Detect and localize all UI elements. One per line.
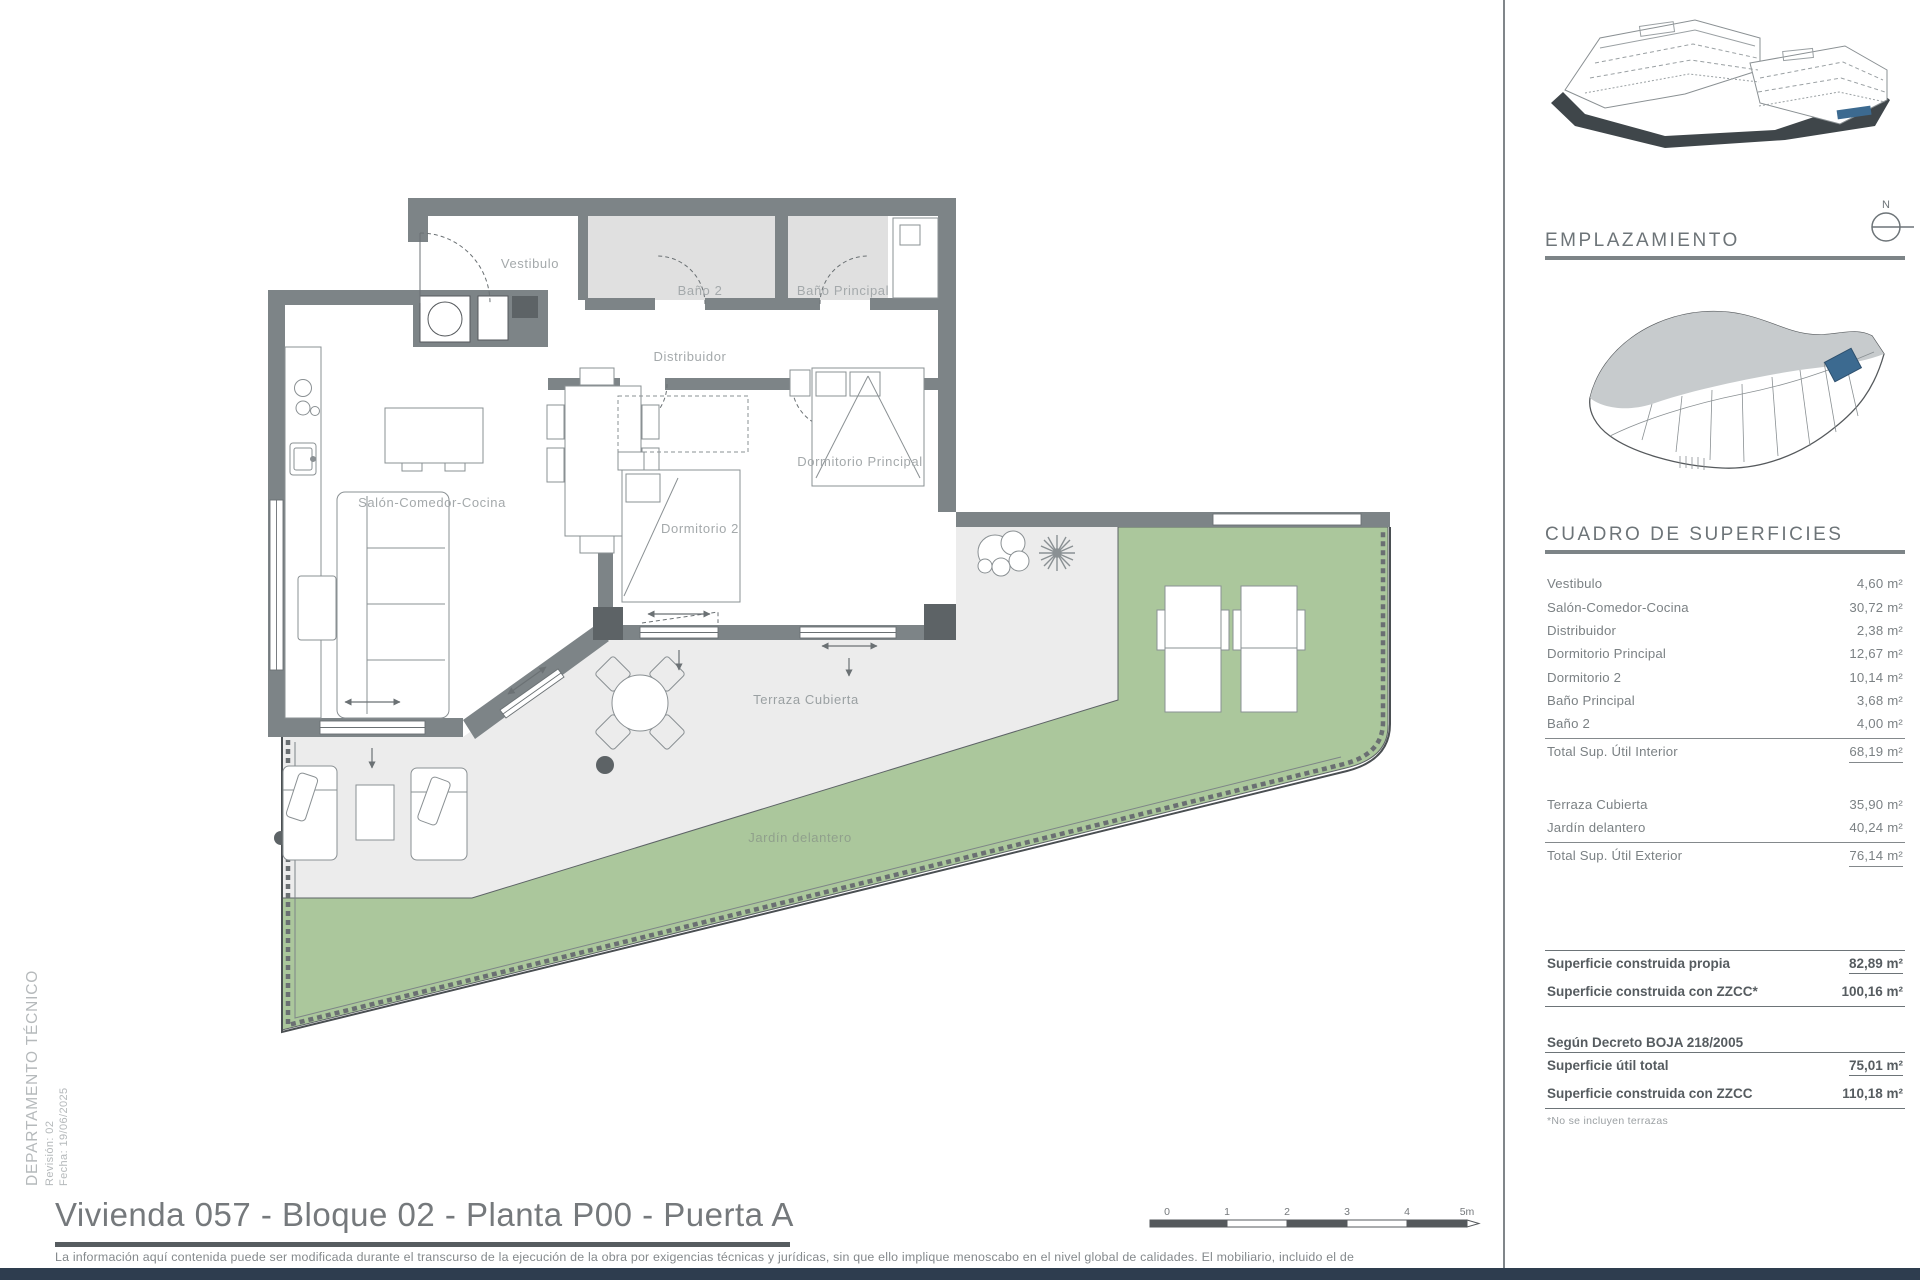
room-label-terraza: Terraza Cubierta: [753, 692, 859, 707]
revision-label: Revisión: 02: [44, 970, 56, 1186]
row-label: Baño Principal: [1547, 693, 1635, 708]
scale-label: 5m: [1460, 1206, 1475, 1218]
table-spacer: [1545, 767, 1905, 793]
room-label-dormitorio2: Dormitorio 2: [661, 521, 739, 536]
room-label-bano-principal: Baño Principal: [797, 283, 889, 298]
table-row: Terraza Cubierta35,90 m²: [1545, 793, 1905, 816]
table-row: Dormitorio Principal12,67 m²: [1545, 642, 1905, 665]
scale-bar: 0 1 2 3 4 5m: [1148, 1206, 1488, 1236]
table-row: Dormitorio 210,14 m²: [1545, 666, 1905, 689]
row-value: 100,16 m²: [1841, 984, 1903, 1001]
row-label: Vestibulo: [1547, 576, 1602, 591]
site-plan: [1572, 278, 1902, 508]
scale-label: 2: [1284, 1206, 1290, 1218]
total-interior-row: Total Sup. Útil Interior68,19 m²: [1545, 738, 1905, 767]
date-label: Fecha: 19/06/2025: [58, 970, 70, 1186]
department-label: DEPARTAMENTO TÉCNICO: [24, 970, 42, 1186]
side-revision-block: DEPARTAMENTO TÉCNICO Revisión: 02 Fecha:…: [24, 970, 70, 1186]
decreto-heading: Según Decreto BOJA 218/2005: [1545, 1031, 1905, 1052]
plant-bush-icon: [978, 531, 1029, 576]
built-surface-summary: Superficie construida propia82,89 m² Sup…: [1545, 950, 1905, 1133]
room-label-salon: Salón-Comedor-Cocina: [358, 495, 506, 510]
building-3d-sketch: [1545, 8, 1905, 168]
plant-star-icon: [1039, 535, 1075, 571]
row-value: 10,14 m²: [1849, 670, 1903, 685]
svg-text:N: N: [1882, 199, 1890, 211]
table-row: Distribuidor2,38 m²: [1545, 619, 1905, 642]
row-label: Terraza Cubierta: [1547, 797, 1648, 812]
row-value: 4,00 m²: [1857, 716, 1903, 731]
row-label: Total Sup. Útil Interior: [1547, 744, 1678, 763]
row-label: Jardín delantero: [1547, 820, 1646, 835]
row-label: Distribuidor: [1547, 623, 1616, 638]
room-label-distribuidor: Distribuidor: [654, 349, 727, 364]
row-value: 68,19 m²: [1849, 744, 1903, 763]
sidebar-divider: [1503, 0, 1505, 1268]
emplazamiento-underline: [1545, 256, 1905, 260]
summary-block: Superficie construida propia82,89 m² Sup…: [1545, 950, 1905, 1007]
table-row: Baño Principal3,68 m²: [1545, 689, 1905, 712]
row-value: 82,89 m²: [1849, 956, 1903, 974]
row-label: Dormitorio Principal: [1547, 646, 1666, 661]
table-row: Salón-Comedor-Cocina30,72 m²: [1545, 595, 1905, 618]
decreto-block: Superficie útil total75,01 m² Superficie…: [1545, 1052, 1905, 1109]
row-value: 40,24 m²: [1849, 820, 1903, 835]
terrace-column: [596, 756, 614, 774]
row-label: Baño 2: [1547, 716, 1590, 731]
summary-row: Superficie construida con ZZCC*100,16 m²: [1545, 979, 1905, 1006]
scale-label: 0: [1164, 1206, 1170, 1218]
table-row: Vestibulo4,60 m²: [1545, 572, 1905, 595]
row-label: Salón-Comedor-Cocina: [1547, 600, 1689, 615]
surface-table: Vestibulo4,60 m² Salón-Comedor-Cocina30,…: [1545, 572, 1905, 871]
room-label-jardin: Jardín delantero: [748, 830, 852, 845]
page-title: Vivienda 057 - Bloque 02 - Planta P00 - …: [55, 1196, 794, 1234]
laundry-closet: [420, 296, 508, 342]
row-value: 110,18 m²: [1842, 1086, 1903, 1103]
scale-label: 3: [1344, 1206, 1350, 1218]
row-value: 2,38 m²: [1857, 623, 1903, 638]
row-label: Dormitorio 2: [1547, 670, 1621, 685]
row-value: 3,68 m²: [1857, 693, 1903, 708]
cuadro-underline: [1545, 550, 1905, 554]
north-arrow-icon: N: [1866, 196, 1918, 248]
row-label: Superficie construida con ZZCC: [1547, 1086, 1753, 1103]
title-underline: [55, 1242, 790, 1247]
row-value: 76,14 m²: [1849, 848, 1903, 867]
room-label-vestibulo: Vestibulo: [501, 256, 559, 271]
bottom-accent-bar: [0, 1268, 1920, 1280]
floor-plan: Vestibulo Baño 2 Baño Principal Distribu…: [0, 0, 1540, 1280]
row-label: Superficie construida propia: [1547, 956, 1730, 974]
table-row: Jardín delantero40,24 m²: [1545, 816, 1905, 839]
summary-row: Superficie construida propia82,89 m²: [1545, 951, 1905, 979]
row-label: Superficie útil total: [1547, 1058, 1669, 1076]
table-row: Baño 24,00 m²: [1545, 712, 1905, 735]
row-value: 30,72 m²: [1849, 600, 1903, 615]
row-value: 75,01 m²: [1849, 1058, 1903, 1076]
scale-label: 4: [1404, 1206, 1410, 1218]
emplazamiento-title: EMPLAZAMIENTO: [1545, 230, 1740, 252]
row-label: Total Sup. Útil Exterior: [1547, 848, 1682, 867]
summary-row: Superficie útil total75,01 m²: [1545, 1053, 1905, 1081]
footnote: *No se incluyen terrazas: [1545, 1109, 1905, 1133]
disclaimer-line1: La información aquí contenida puede ser …: [55, 1250, 1502, 1266]
summary-row: Superficie construida con ZZCC110,18 m²: [1545, 1081, 1905, 1108]
scale-label: 1: [1224, 1206, 1230, 1218]
row-value: 35,90 m²: [1849, 797, 1903, 812]
cuadro-title: CUADRO DE SUPERFICIES: [1545, 524, 1843, 546]
room-label-bano2: Baño 2: [678, 283, 723, 298]
total-exterior-row: Total Sup. Útil Exterior76,14 m²: [1545, 842, 1905, 871]
row-value: 12,67 m²: [1849, 646, 1903, 661]
row-value: 4,60 m²: [1857, 576, 1903, 591]
room-label-dormitorio-principal: Dormitorio Principal: [797, 454, 922, 469]
row-label: Superficie construida con ZZCC*: [1547, 984, 1758, 1001]
